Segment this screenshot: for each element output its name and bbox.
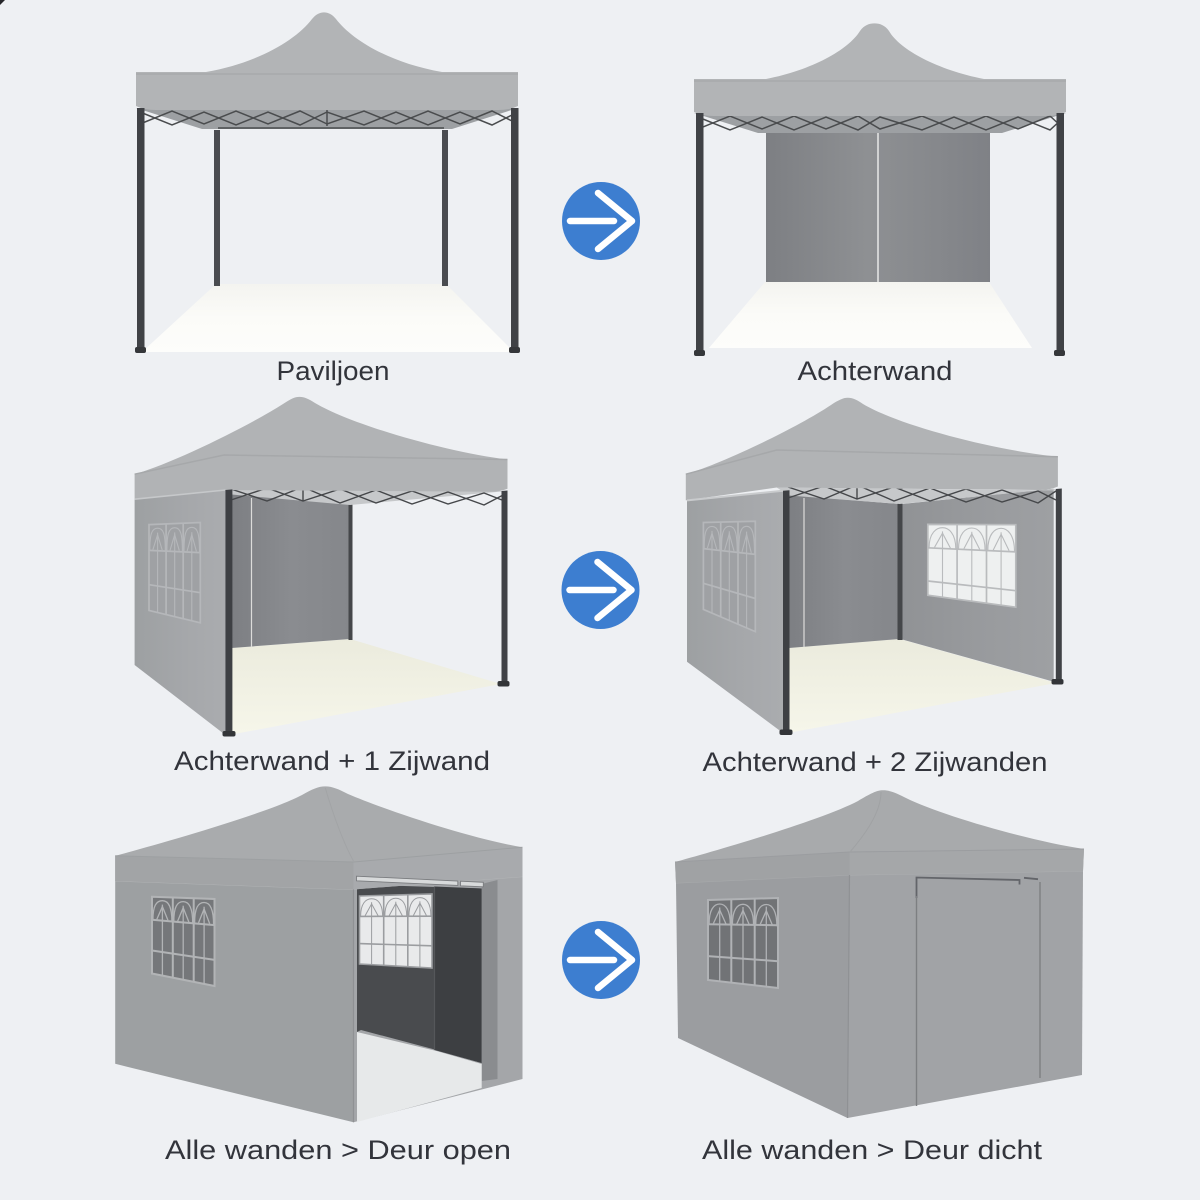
- svg-text:Alle wanden > Deur dicht: Alle wanden > Deur dicht: [702, 1135, 1043, 1165]
- svg-text:Achterwand + 1 Zijwand: Achterwand + 1 Zijwand: [174, 746, 490, 776]
- svg-text:Achterwand + 2 Zijwanden: Achterwand + 2 Zijwanden: [703, 747, 1048, 777]
- svg-text:Achterwand: Achterwand: [798, 356, 953, 386]
- svg-text:Alle wanden > Deur open: Alle wanden > Deur open: [165, 1135, 511, 1165]
- svg-text:Paviljoen: Paviljoen: [277, 356, 390, 386]
